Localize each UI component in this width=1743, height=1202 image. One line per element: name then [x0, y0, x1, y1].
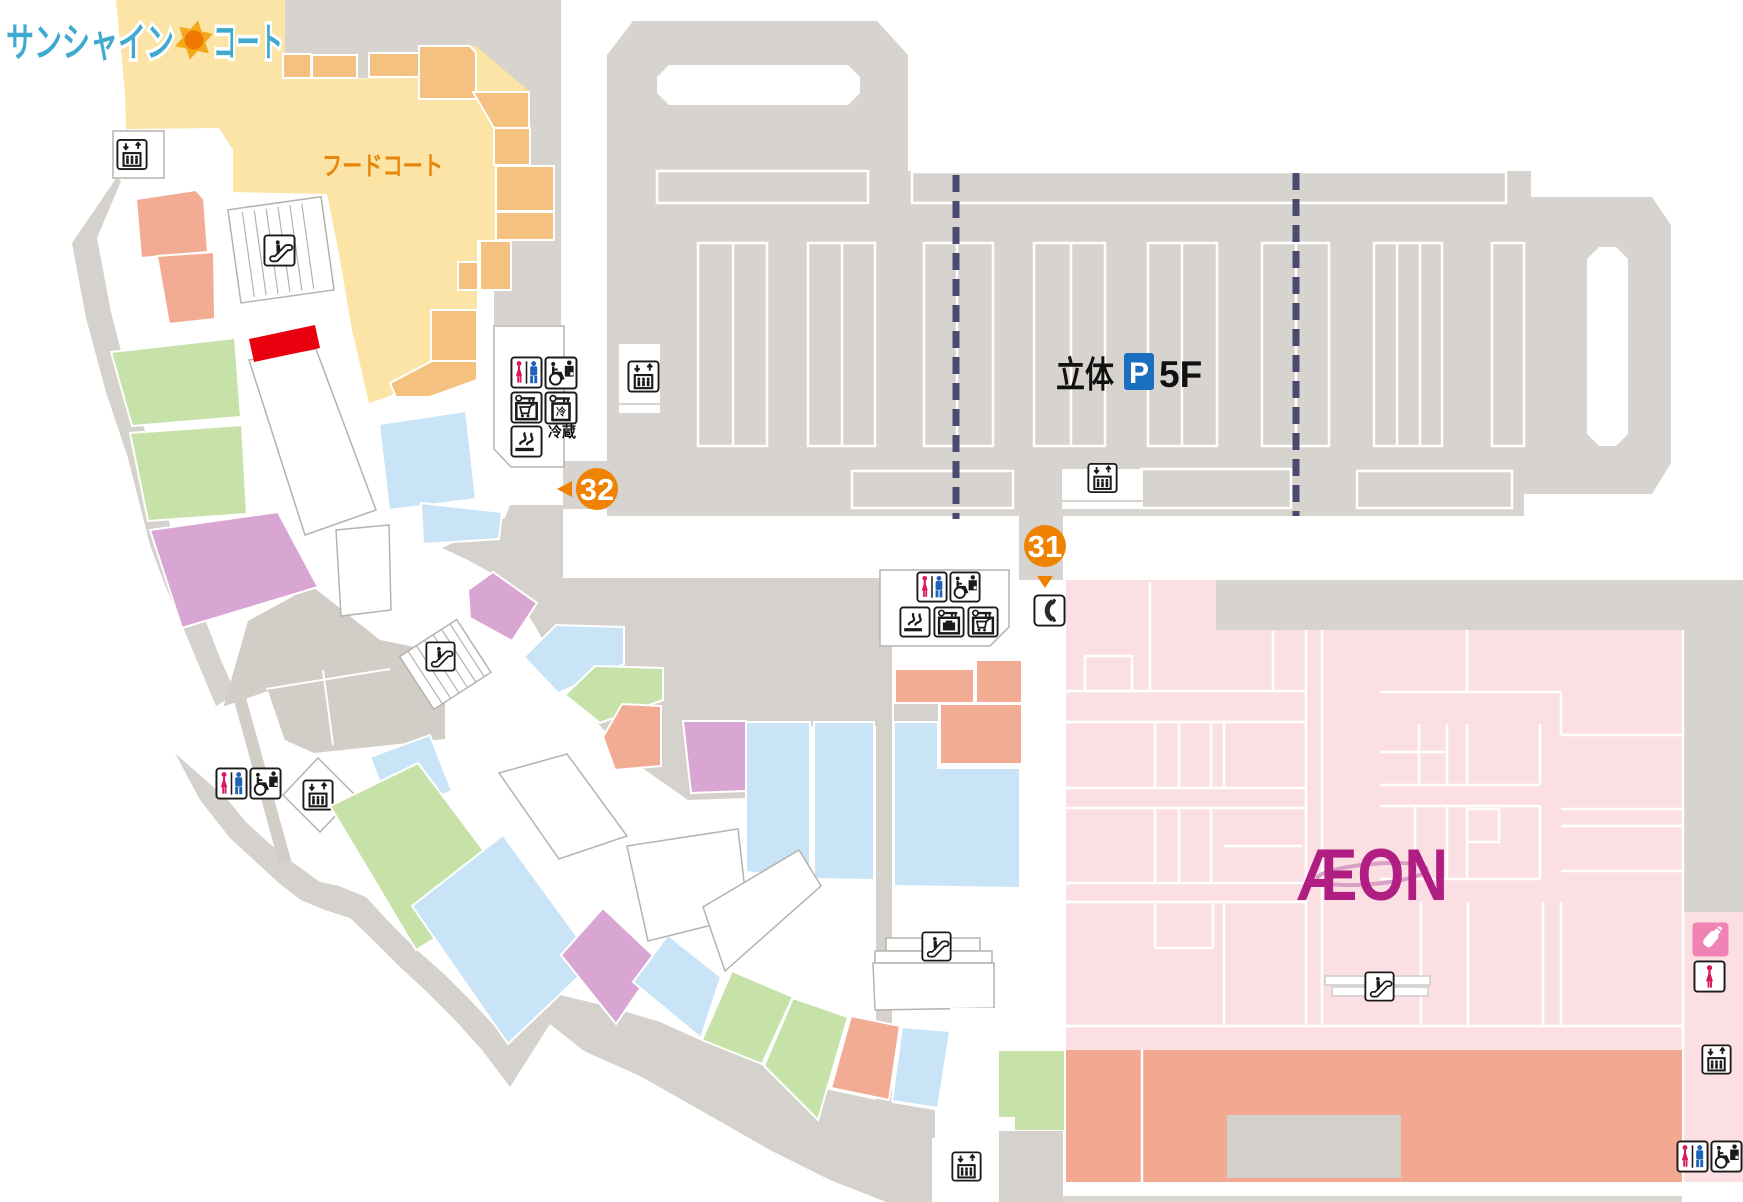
svg-text:フードコート: フードコート: [322, 151, 443, 181]
svg-text:32: 32: [580, 472, 614, 507]
svg-text:ÆON: ÆON: [1297, 835, 1448, 916]
svg-text:冷蔵: 冷蔵: [548, 424, 576, 440]
svg-text:コート: コート: [213, 21, 283, 65]
svg-text:立体: 立体: [1056, 354, 1114, 395]
svg-text:P: P: [1129, 357, 1149, 390]
svg-text:サンシャイン: サンシャイン: [6, 21, 174, 65]
svg-text:5F: 5F: [1159, 354, 1202, 395]
svg-text:31: 31: [1028, 529, 1062, 564]
